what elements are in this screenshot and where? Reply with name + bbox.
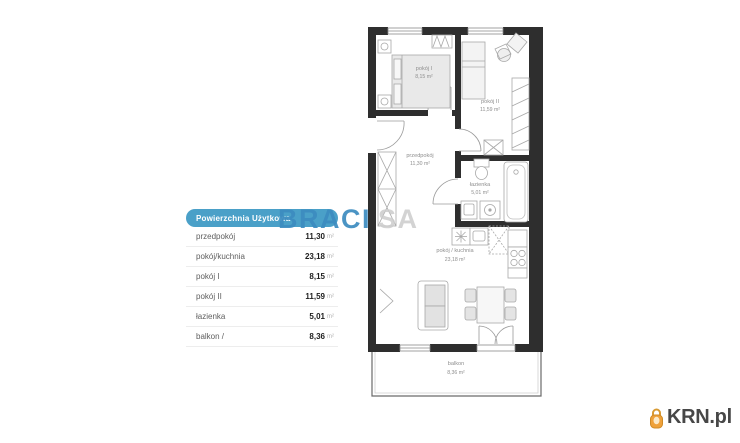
- table-row: łazienka 5,01m²: [186, 307, 338, 327]
- pillow: [394, 84, 401, 104]
- sofa-cushion: [425, 285, 445, 306]
- row-unit: m²: [327, 274, 334, 280]
- row-label: balkon /: [196, 332, 224, 341]
- toilet-icon: [474, 159, 489, 167]
- row-label: łazienka: [196, 312, 225, 321]
- row-label: pokój I: [196, 272, 220, 281]
- table-row: balkon / 8,36m²: [186, 327, 338, 347]
- room-label: pokój / kuchnia: [436, 248, 474, 254]
- sofa-cushion: [425, 306, 445, 327]
- row-value: 11,30m²: [305, 232, 334, 241]
- row-value: 8,36m²: [309, 332, 334, 341]
- row-unit: m²: [327, 234, 334, 240]
- room-area: 8,36 m²: [447, 370, 465, 376]
- row-value: 8,15m²: [309, 272, 334, 281]
- floor-plan: pokój I 8,15 m² pokój II 11,59 m² przedp…: [364, 20, 548, 402]
- desk: [507, 33, 527, 53]
- row-unit: m²: [327, 334, 334, 340]
- pillow: [394, 59, 401, 79]
- room-area: 11,30 m²: [410, 161, 430, 167]
- balcony-door-icon: [479, 326, 513, 344]
- nightstand: [378, 40, 391, 53]
- room-area: 11,59 m²: [480, 107, 500, 113]
- table-row: pokój/kuchnia 23,18m²: [186, 247, 338, 267]
- planned-appliance: [489, 226, 509, 254]
- chair: [465, 307, 476, 320]
- living-room-furniture: [380, 281, 516, 330]
- row-unit: m²: [327, 254, 334, 260]
- area-table-header: Powierzchnia Użytkowa: [186, 209, 338, 227]
- table-row: pokój II 11,59m²: [186, 287, 338, 307]
- table-row: pokój I 8,15m²: [186, 267, 338, 287]
- dresser: [462, 42, 485, 99]
- row-label: przedpokój: [196, 232, 235, 241]
- row-unit: m²: [327, 314, 334, 320]
- room-label: pokój II: [481, 99, 499, 105]
- door-icon: [459, 129, 481, 151]
- room-label: łazienka: [470, 182, 491, 188]
- row-label: pokój/kuchnia: [196, 252, 245, 261]
- room-area: 23,18 m²: [445, 257, 466, 263]
- row-label: pokój II: [196, 292, 222, 301]
- room-label: przedpokój: [406, 153, 433, 159]
- table-row: przedpokój 11,30m²: [186, 227, 338, 247]
- padlock-icon: [648, 407, 665, 429]
- balcony-door-sill: [477, 345, 515, 351]
- counter: [508, 230, 527, 247]
- hall-furniture: [378, 152, 396, 226]
- area-table: Powierzchnia Użytkowa przedpokój 11,30m²…: [186, 209, 338, 347]
- room-area: 5,01 m²: [471, 190, 489, 196]
- door-icon: [433, 179, 458, 204]
- krn-logo[interactable]: KRN.pl: [648, 406, 732, 429]
- row-value: 5,01m²: [309, 312, 334, 321]
- entrance-door-icon: [377, 121, 404, 150]
- bathtub-icon: [504, 162, 528, 222]
- row-unit: m²: [327, 294, 334, 300]
- chair: [505, 307, 516, 320]
- row-value: 11,59m²: [305, 292, 334, 301]
- wardrobe: [512, 78, 529, 150]
- radiator-icon: [380, 289, 393, 313]
- chair: [465, 289, 476, 302]
- dining-table: [477, 287, 504, 323]
- counter: [508, 268, 527, 278]
- floorplan-page: Powierzchnia Użytkowa przedpokój 11,30m²…: [0, 0, 740, 443]
- chair: [505, 289, 516, 302]
- room-label: pokój I: [416, 66, 433, 72]
- logo-text: KRN.pl: [667, 406, 732, 429]
- room-label: balkon: [448, 361, 464, 367]
- room-area: 8,15 m²: [415, 74, 433, 80]
- row-value: 23,18m²: [305, 252, 334, 261]
- nightstand: [378, 95, 391, 108]
- room-pokoj-ii-furniture: [462, 33, 529, 155]
